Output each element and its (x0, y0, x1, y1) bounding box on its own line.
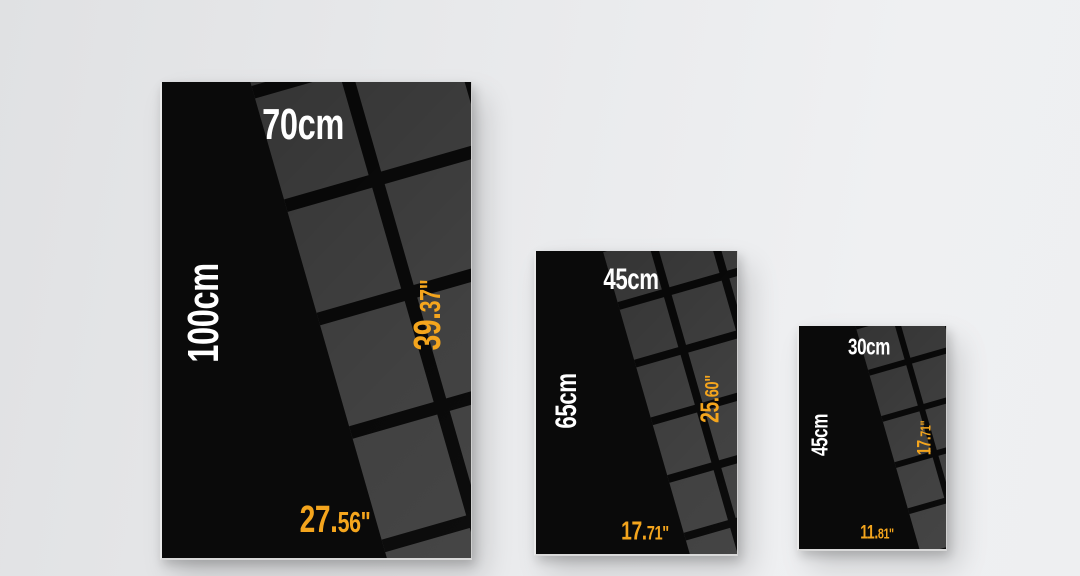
poster-panel-medium: 45cm 65cm 25.60" 17.71" (534, 251, 738, 556)
height-inch-main: 39. (407, 313, 449, 351)
width-inch-fraction: 56" (338, 507, 371, 539)
width-cm-label: 70cm (262, 103, 344, 147)
width-inch-label: 27.56" (300, 501, 371, 539)
height-inch-label: 17.71" (916, 420, 935, 454)
height-inch-label: 25.60" (696, 376, 723, 424)
width-inch-fraction: 81" (878, 527, 894, 543)
width-inch-label: 17.71" (621, 518, 669, 545)
height-inch-main: 25. (694, 398, 724, 424)
width-inch-label: 11.81" (860, 524, 894, 543)
height-inch-label: 39.37" (409, 280, 447, 351)
width-inch-main: 17. (621, 516, 647, 546)
poster-panel-small: 30cm 45cm 17.71" 11.81" (797, 326, 947, 551)
width-cm-label: 30cm (848, 336, 890, 359)
height-cm-label: 65cm (552, 373, 582, 428)
height-cm-label: 45cm (809, 414, 832, 456)
height-inch-fraction: 71" (919, 420, 935, 436)
height-cm-label: 100cm (182, 263, 226, 363)
poster-panel-large: 70cm 100cm 39.37" 27.56" (160, 82, 472, 560)
height-inch-fraction: 37" (415, 280, 447, 313)
width-inch-main: 27. (300, 499, 338, 541)
height-inch-fraction: 60" (701, 376, 723, 398)
width-inch-fraction: 71" (646, 523, 668, 545)
width-inch-main: 11. (860, 523, 878, 544)
width-cm-label: 45cm (604, 265, 659, 295)
poster-size-comparison: 70cm 100cm 39.37" 27.56" 45cm 65cm 25.60… (0, 0, 1080, 576)
height-inch-main: 17. (915, 436, 936, 454)
